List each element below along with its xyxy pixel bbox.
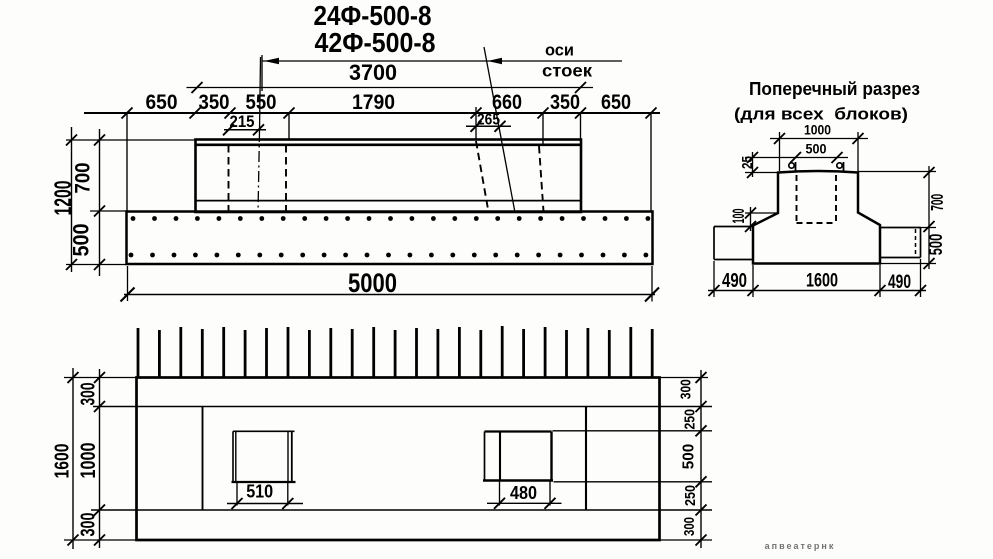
svg-text:3700: 3700 — [349, 60, 397, 85]
svg-text:100: 100 — [730, 209, 748, 224]
svg-text:500: 500 — [806, 141, 827, 157]
svg-text:300: 300 — [681, 517, 698, 536]
svg-text:1000: 1000 — [804, 123, 831, 138]
svg-text:1600: 1600 — [52, 444, 74, 479]
svg-text:215: 215 — [230, 112, 255, 131]
svg-text:42Ф-500-8: 42Ф-500-8 — [315, 27, 436, 58]
svg-text:500: 500 — [926, 234, 946, 256]
svg-text:(для всех блоков): (для всех блоков) — [734, 105, 908, 124]
svg-text:480: 480 — [510, 483, 537, 503]
svg-text:500: 500 — [69, 224, 94, 257]
svg-text:350: 350 — [199, 90, 230, 114]
svg-text:650: 650 — [146, 90, 178, 114]
svg-text:650: 650 — [601, 90, 631, 114]
svg-text:490: 490 — [888, 271, 911, 293]
svg-text:апвеатернк: апвеатернк — [765, 541, 836, 551]
svg-text:500: 500 — [681, 444, 698, 470]
svg-text:5000: 5000 — [348, 268, 397, 298]
svg-text:490: 490 — [722, 269, 747, 292]
svg-text:550: 550 — [246, 90, 277, 114]
svg-text:300: 300 — [77, 513, 100, 537]
svg-text:700: 700 — [927, 194, 947, 211]
svg-text:1790: 1790 — [352, 90, 395, 114]
svg-text:стоек: стоек — [542, 61, 592, 81]
svg-text:оси: оси — [545, 42, 574, 60]
svg-text:510: 510 — [246, 482, 273, 502]
svg-text:Поперечный разрез: Поперечный разрез — [749, 79, 920, 99]
svg-text:300: 300 — [77, 383, 100, 406]
svg-text:300: 300 — [678, 379, 695, 399]
svg-text:250: 250 — [682, 485, 699, 506]
svg-text:350: 350 — [550, 90, 580, 114]
svg-text:1600: 1600 — [806, 270, 838, 292]
svg-text:1000: 1000 — [77, 443, 100, 479]
svg-text:700: 700 — [72, 163, 95, 194]
svg-text:250: 250 — [682, 409, 699, 430]
